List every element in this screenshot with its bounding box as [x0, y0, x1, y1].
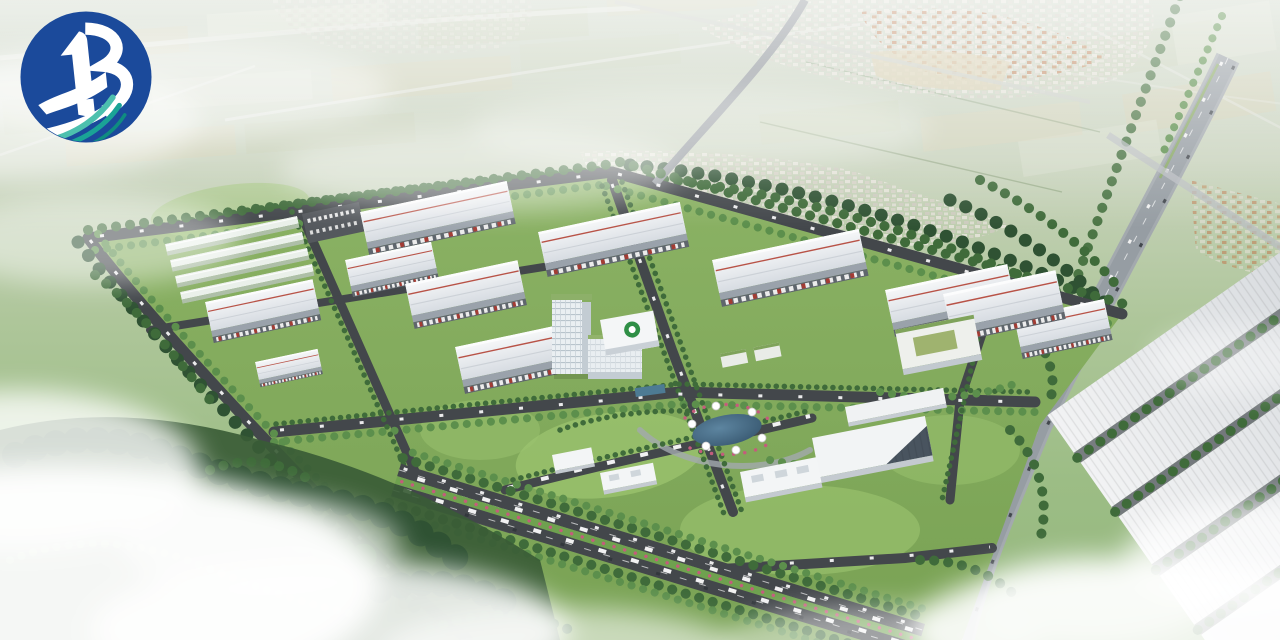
- company-logo: [14, 5, 158, 149]
- company-logo-mark: [14, 5, 158, 149]
- industrial-park-scene: [0, 0, 1280, 640]
- atmosphere-haze: [0, 0, 1280, 230]
- aerial-render: [0, 0, 1280, 640]
